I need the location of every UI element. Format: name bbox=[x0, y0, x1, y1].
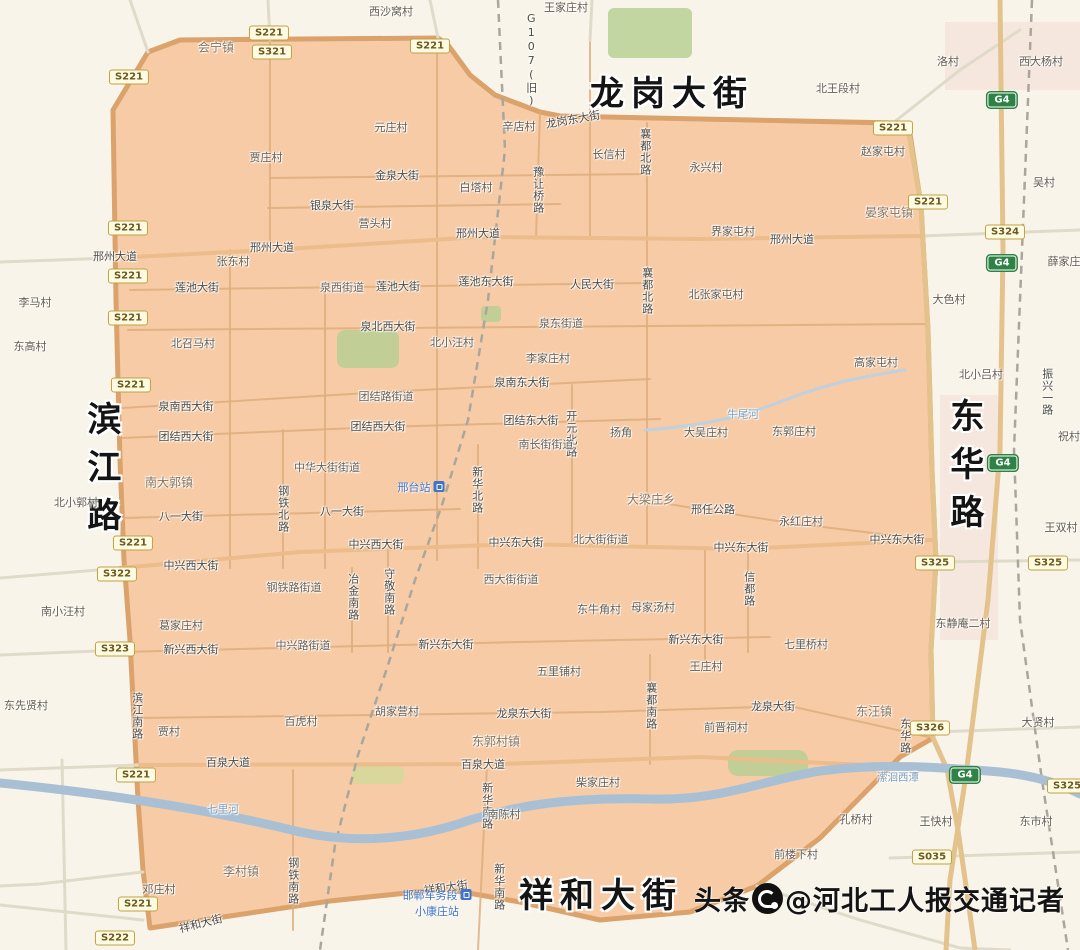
village-label: 南陈村 bbox=[488, 809, 521, 821]
road-label: 新兴西大街 bbox=[164, 644, 219, 656]
road-label: 滨江南路 bbox=[131, 692, 143, 740]
village-label: 辛店村 bbox=[503, 121, 536, 133]
street-label: 西大街街道 bbox=[484, 574, 539, 586]
road-label: 襄都北路 bbox=[639, 128, 651, 176]
road-label: 钢铁北路 bbox=[277, 485, 289, 533]
road-label: 八一大街 bbox=[159, 511, 203, 523]
street-label: 泉西街道 bbox=[320, 282, 364, 294]
road-shield-s321: S321 bbox=[252, 45, 292, 60]
village-label: 大贤村 bbox=[1022, 717, 1055, 729]
road-label: 泉南西大街 bbox=[159, 401, 214, 413]
village-label: 永兴村 bbox=[690, 162, 723, 174]
road-shield-s035: S035 bbox=[912, 850, 952, 865]
road-shield-s221: S221 bbox=[113, 536, 153, 551]
boundary-road-label: 东华路 bbox=[945, 398, 981, 542]
town-label: 大梁庄乡 bbox=[627, 494, 675, 507]
road-label: 团结西大街 bbox=[351, 421, 406, 433]
station-label: 邯郸车务段小康庄站 bbox=[403, 887, 472, 919]
village-label: 东牛角村 bbox=[577, 604, 621, 616]
road-label: 襄都南路 bbox=[645, 682, 657, 730]
road-label: 金泉大街 bbox=[375, 170, 419, 182]
village-label: 洛村 bbox=[937, 56, 959, 68]
street-label: 团结路街道 bbox=[359, 391, 414, 403]
town-label: 李村镇 bbox=[223, 866, 259, 879]
village-label: 母家汤村 bbox=[631, 602, 675, 614]
boundary-road-label: 祥和大街 bbox=[519, 879, 683, 915]
road-shield-s221: S221 bbox=[111, 378, 151, 393]
village-label: 北张家屯村 bbox=[689, 289, 744, 301]
village-label: 贾村 bbox=[158, 726, 180, 738]
road-label: 冶金南路 bbox=[347, 573, 359, 621]
village-label: 东郭庄村 bbox=[772, 426, 816, 438]
road-label: 新兴东大街 bbox=[669, 634, 724, 646]
village-label: 王庄村 bbox=[690, 661, 723, 673]
road-shield-s221: S221 bbox=[109, 70, 149, 85]
road-shield-g4: G4 bbox=[987, 256, 1016, 271]
road-label: 龙泉大街 bbox=[751, 701, 795, 713]
toutiao-logo-icon bbox=[752, 883, 783, 914]
road-shield-s326: S326 bbox=[910, 721, 950, 736]
village-label: 李家庄村 bbox=[526, 353, 570, 365]
road-label: 团结东大街 bbox=[504, 415, 559, 427]
street-label: 中兴路街道 bbox=[276, 640, 331, 652]
village-label: 前晋祠村 bbox=[704, 722, 748, 734]
village-label: 北小汪村 bbox=[430, 337, 474, 349]
town-label: 南大郭镇 bbox=[145, 477, 193, 490]
road-label: 莲池大街 bbox=[376, 281, 420, 293]
village-label: 永红庄村 bbox=[779, 516, 823, 528]
village-label: 五里铺村 bbox=[537, 666, 581, 678]
road-shield-s221: S221 bbox=[108, 311, 148, 326]
road-shield-s324: S324 bbox=[985, 225, 1025, 240]
village-label: 长信村 bbox=[593, 149, 626, 161]
road-shield-g4: G4 bbox=[987, 93, 1016, 108]
road-shield-s221: S221 bbox=[118, 897, 158, 912]
village-label: 东市村 bbox=[1020, 816, 1053, 828]
road-shield-s221: S221 bbox=[116, 768, 156, 783]
village-label: 张东村 bbox=[217, 256, 250, 268]
water-label: 潆洄西潭 bbox=[877, 772, 919, 783]
street-label: 南长街街道 bbox=[519, 439, 574, 451]
road-label: 邢任公路 bbox=[691, 504, 735, 516]
road-label: 龙泉东大街 bbox=[497, 708, 552, 720]
road-shield-s322: S322 bbox=[97, 567, 137, 582]
road-label: 中兴东大街 bbox=[714, 542, 769, 554]
village-label: 胡家营村 bbox=[375, 706, 419, 718]
station-label: 邢台站 bbox=[398, 479, 445, 495]
village-label: 百虎村 bbox=[285, 716, 318, 728]
road-label: 新华南路 bbox=[493, 863, 505, 911]
road-label: 中兴西大街 bbox=[349, 539, 404, 551]
village-label: 王快村 bbox=[920, 816, 953, 828]
road-label: 中兴东大街 bbox=[870, 534, 925, 546]
road-label: 豫让桥路 bbox=[532, 166, 544, 214]
village-label: 薛家庄 bbox=[1048, 256, 1080, 268]
road-label: 新华北路 bbox=[471, 466, 483, 514]
village-label: 邓庄村 bbox=[143, 884, 176, 896]
map-canvas[interactable]: 龙岗大街滨江路东华路祥和大街龙岗东大街邢州大道邢州大道邢州大道邢州大道金泉大街银… bbox=[0, 0, 1080, 950]
road-label: 祥和大街 bbox=[178, 913, 223, 935]
road-shield-s221: S221 bbox=[908, 195, 948, 210]
village-label: 元庄村 bbox=[375, 122, 408, 134]
boundary-road-label: 滨江路 bbox=[82, 401, 118, 545]
road-label: 中兴东大街 bbox=[489, 537, 544, 549]
village-label: 赵家屯村 bbox=[861, 146, 905, 158]
station-icon bbox=[461, 889, 472, 900]
village-label: 柴家庄村 bbox=[576, 777, 620, 789]
road-label: 泉北西大街 bbox=[361, 321, 416, 333]
road-label: 邢州大道 bbox=[250, 242, 294, 254]
village-label: 葛家庄村 bbox=[159, 620, 203, 632]
road-label: 人民大街 bbox=[570, 279, 614, 291]
town-label: 东汪镇 bbox=[856, 706, 892, 719]
road-label: 新兴东大街 bbox=[419, 639, 474, 651]
road-label: 百泉大道 bbox=[206, 757, 250, 769]
village-label: 王双村 bbox=[1045, 522, 1078, 534]
road-shield-s323: S323 bbox=[95, 642, 135, 657]
watermark-handle: @河北工人报交通记者 bbox=[785, 879, 1065, 918]
road-label: 新华南路 bbox=[481, 782, 493, 830]
road-label: 银泉大街 bbox=[310, 200, 354, 212]
road-shield-s221: S221 bbox=[410, 39, 450, 54]
road-shield-g4: G4 bbox=[988, 456, 1017, 471]
road-label: 钢铁南路 bbox=[287, 857, 299, 905]
village-label: 王家庄村 bbox=[544, 2, 588, 14]
road-label: 龙岗东大街 bbox=[545, 110, 601, 131]
road-label: G107(旧) bbox=[525, 12, 537, 108]
village-label: 北召马村 bbox=[171, 338, 215, 350]
road-label: 百泉大道 bbox=[461, 759, 505, 771]
station-icon bbox=[434, 481, 445, 492]
road-label: 中兴西大街 bbox=[164, 560, 219, 572]
road-shield-s221: S221 bbox=[108, 221, 148, 236]
street-label: 中华大街街道 bbox=[294, 462, 360, 474]
road-label: 信都路 bbox=[743, 571, 755, 607]
village-label: 北小郭村 bbox=[54, 497, 98, 509]
village-label: 东静庵二村 bbox=[936, 618, 991, 630]
road-label: 襄都北路 bbox=[641, 267, 653, 315]
village-label: 北小吕村 bbox=[959, 369, 1003, 381]
road-shield-s222: S222 bbox=[95, 931, 135, 946]
road-shield-s221: S221 bbox=[873, 121, 913, 136]
boundary-road-label: 龙岗大街 bbox=[590, 77, 754, 113]
watermark: 头条 @河北工人报交通记者 bbox=[694, 879, 1065, 918]
road-shield-s325: S325 bbox=[1047, 779, 1080, 794]
road-label: 守敬南路 bbox=[383, 568, 395, 616]
watermark-platform: 头条 bbox=[694, 879, 750, 918]
street-label: 钢铁路街道 bbox=[267, 582, 322, 594]
map-screenshot: 龙岗大街滨江路东华路祥和大街龙岗东大街邢州大道邢州大道邢州大道邢州大道金泉大街银… bbox=[0, 0, 1080, 950]
village-label: 东先贤村 bbox=[4, 700, 48, 712]
road-shield-g4: G4 bbox=[950, 768, 979, 783]
road-label: 振兴一路 bbox=[1041, 368, 1053, 416]
street-label: 北大街街道 bbox=[574, 534, 629, 546]
village-label: 西大杨村 bbox=[1019, 56, 1063, 68]
road-shield-s325: S325 bbox=[1028, 556, 1068, 571]
village-label: 李马村 bbox=[19, 297, 52, 309]
road-shield-s325: S325 bbox=[915, 556, 955, 571]
village-label: 扬角 bbox=[610, 427, 632, 439]
town-label: 晏家屯镇 bbox=[865, 207, 913, 220]
village-label: 祝村 bbox=[1058, 431, 1080, 443]
village-label: 大色村 bbox=[933, 294, 966, 306]
village-label: 孔桥村 bbox=[840, 814, 873, 826]
map-labels-layer: 龙岗大街滨江路东华路祥和大街龙岗东大街邢州大道邢州大道邢州大道邢州大道金泉大街银… bbox=[0, 0, 1080, 950]
village-label: 前楼下村 bbox=[774, 849, 818, 861]
water-label: 牛尾河 bbox=[727, 409, 759, 420]
village-label: 白塔村 bbox=[460, 182, 493, 194]
road-label: 邢州大道 bbox=[93, 251, 137, 263]
road-shield-s221: S221 bbox=[108, 269, 148, 284]
village-label: 东高村 bbox=[14, 341, 47, 353]
road-label: 邢州大道 bbox=[770, 234, 814, 246]
village-label: 界家屯村 bbox=[711, 226, 755, 238]
village-label: 高家屯村 bbox=[854, 357, 898, 369]
town-label: 会宁镇 bbox=[198, 42, 234, 55]
village-label: 吴村 bbox=[1033, 177, 1055, 189]
water-label: 七里河 bbox=[207, 804, 239, 815]
road-label: 泉南东大街 bbox=[495, 377, 550, 389]
village-label: 大吴庄村 bbox=[684, 427, 728, 439]
street-label: 泉东街道 bbox=[539, 318, 583, 330]
road-label: 莲池东大街 bbox=[459, 276, 514, 288]
road-label: 莲池大街 bbox=[175, 282, 219, 294]
road-label: 八一大街 bbox=[320, 506, 364, 518]
village-label: 北王段村 bbox=[816, 83, 860, 95]
road-label: 团结西大街 bbox=[159, 431, 214, 443]
village-label: 营头村 bbox=[359, 218, 392, 230]
road-label: 邢州大道 bbox=[456, 228, 500, 240]
town-label: 东郭村镇 bbox=[472, 736, 520, 749]
village-label: 西沙窝村 bbox=[369, 6, 413, 18]
road-shield-s221: S221 bbox=[249, 26, 289, 41]
village-label: 贾庄村 bbox=[250, 152, 283, 164]
village-label: 七里桥村 bbox=[784, 639, 828, 651]
village-label: 南小汪村 bbox=[41, 606, 85, 618]
